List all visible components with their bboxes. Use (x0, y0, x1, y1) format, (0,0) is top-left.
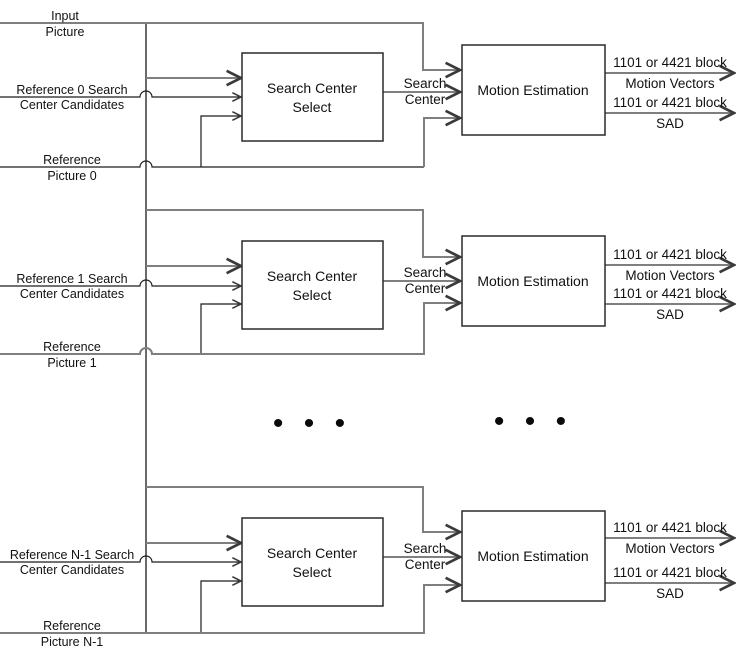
row-0: Input Picture Reference 0 Search Center … (0, 9, 734, 183)
search-center-signal1-bottom: Center (405, 281, 446, 296)
scs2-input3-stub (201, 581, 241, 633)
scs1-label-line2: Select (293, 287, 332, 303)
ref-picture-1-label-bottom: Picture 1 (47, 356, 96, 370)
me0-label: Motion Estimation (477, 82, 588, 98)
search-center-select-box-0 (242, 53, 383, 141)
search-center-signal2-top: Search (404, 541, 447, 556)
row-2: Reference N-1 Search Center Candidates R… (0, 487, 734, 649)
search-center-signal1-top: Search (404, 265, 447, 280)
ref-picture-0-label-top: Reference (43, 153, 101, 167)
scs2-label-line2: Select (293, 564, 332, 580)
out0-mv-block-label: 1101 or 4421 block (613, 55, 727, 70)
out1-sad-block-label: 1101 or 4421 block (613, 286, 727, 301)
me1-label: Motion Estimation (477, 273, 588, 289)
scs2-label-line1: Search Center (267, 545, 358, 561)
ref0-candidates-label-top: Reference 0 Search (16, 83, 127, 97)
out2-sad-block-label: 1101 or 4421 block (613, 565, 727, 580)
out1-sad-label: SAD (656, 307, 684, 322)
row-1: Reference 1 Search Center Candidates Ref… (0, 210, 734, 370)
continuation-ellipsis-left: • • • (273, 407, 351, 440)
out2-sad-label: SAD (656, 586, 684, 601)
scs0-label-line2: Select (293, 99, 332, 115)
ref1-candidates-label-top: Reference 1 Search (16, 272, 127, 286)
out2-mv-block-label: 1101 or 4421 block (613, 520, 727, 535)
ref-picture-0-label-bottom: Picture 0 (47, 169, 96, 183)
ref-picture-n1-label-top: Reference (43, 619, 101, 633)
scs1-label-line1: Search Center (267, 268, 358, 284)
motion-estimation-diagram: Input Picture Reference 0 Search Center … (0, 0, 742, 660)
continuation-ellipsis-right: • • • (494, 405, 572, 438)
ref1-candidates-label-bottom: Center Candidates (20, 287, 124, 301)
ref0-to-me-riser (424, 118, 460, 167)
input-picture-label-top: Input (51, 9, 79, 23)
refN1-candidates-label-top: Reference N-1 Search (10, 548, 134, 562)
scs0-label-line1: Search Center (267, 80, 358, 96)
scs0-input3-stub (201, 116, 241, 167)
out1-mv-label: Motion Vectors (625, 268, 715, 283)
ref-picture-1-label-top: Reference (43, 340, 101, 354)
search-center-signal0-top: Search (404, 76, 447, 91)
search-center-select-box-1 (242, 241, 383, 329)
out0-sad-label: SAD (656, 116, 684, 131)
search-center-signal0-bottom: Center (405, 92, 446, 107)
search-center-signal2-bottom: Center (405, 557, 446, 572)
ref0-candidates-label-bottom: Center Candidates (20, 98, 124, 112)
input-picture-label-bottom: Picture (46, 25, 85, 39)
out1-mv-block-label: 1101 or 4421 block (613, 247, 727, 262)
scs1-input3-stub (201, 304, 241, 354)
out0-sad-block-label: 1101 or 4421 block (613, 95, 727, 110)
diagram-canvas: Input Picture Reference 0 Search Center … (0, 0, 742, 660)
search-center-select-box-2 (242, 518, 383, 606)
refN1-candidates-label-bottom: Center Candidates (20, 563, 124, 577)
out0-mv-label: Motion Vectors (625, 76, 715, 91)
out2-mv-label: Motion Vectors (625, 541, 715, 556)
me2-label: Motion Estimation (477, 548, 588, 564)
ref-picture-n1-label-bottom: Picture N-1 (41, 635, 104, 649)
